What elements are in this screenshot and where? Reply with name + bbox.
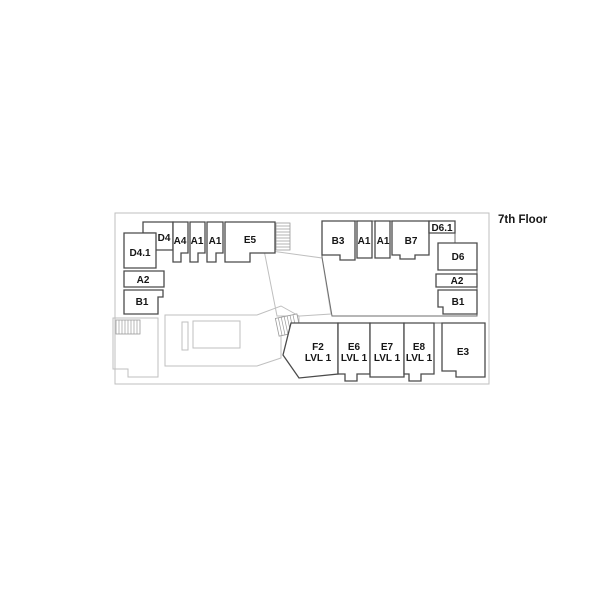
- room-label-a1-left-2: A1: [209, 236, 222, 247]
- room-sublabel-e8: LVL 1: [406, 353, 433, 364]
- room-a1-left-1: A1: [190, 222, 205, 262]
- room-label-e5: E5: [244, 235, 257, 246]
- room-label-e3: E3: [457, 347, 470, 358]
- room-d6-1: D6.1: [429, 221, 455, 234]
- room-b1-left: B1: [124, 290, 163, 314]
- room-e3: E3: [442, 323, 485, 377]
- room-label-f2: F2: [312, 342, 324, 353]
- room-e8: E8 LVL 1: [404, 323, 434, 381]
- room-label-b7: B7: [405, 236, 418, 247]
- room-label-e7: E7: [381, 342, 394, 353]
- room-e7: E7 LVL 1: [370, 323, 404, 377]
- room-label-d4-1: D4.1: [129, 248, 151, 259]
- room-sublabel-e7: LVL 1: [374, 353, 401, 364]
- room-f2: F2 LVL 1: [283, 323, 338, 378]
- stairs-top-icon: [276, 223, 290, 250]
- floor-title: 7th Floor: [498, 214, 548, 226]
- room-label-d6-1: D6.1: [431, 223, 453, 234]
- room-label-d6: D6: [452, 252, 465, 263]
- room-label-b1-left: B1: [136, 297, 149, 308]
- room-label-d4: D4: [158, 233, 171, 244]
- left-wing: D4 A4 A1 A1 E5 D4.1 A2 B1: [124, 222, 275, 314]
- room-b3: B3: [322, 221, 355, 260]
- room-a1-left-2: A1: [207, 222, 223, 262]
- room-b1-right: B1: [438, 290, 477, 314]
- shaft-small: [182, 322, 188, 350]
- room-a1-right-1: A1: [357, 221, 372, 258]
- room-label-b3: B3: [332, 236, 345, 247]
- room-a2-right: A2: [436, 274, 477, 287]
- room-sublabel-f2: LVL 1: [305, 353, 332, 364]
- room-a2-left: A2: [124, 271, 164, 287]
- shaft-large: [193, 321, 240, 348]
- room-label-a1-left-1: A1: [191, 236, 204, 247]
- room-label-a1-right-1: A1: [358, 236, 371, 247]
- room-a1-right-2: A1: [375, 221, 390, 258]
- room-label-a2-right: A2: [451, 276, 464, 287]
- room-label-a1-right-2: A1: [377, 236, 390, 247]
- stairs-bottom-left-icon: [116, 320, 140, 334]
- room-label-a2-left: A2: [137, 275, 150, 286]
- room-sublabel-e6: LVL 1: [341, 353, 368, 364]
- room-e6: E6 LVL 1: [338, 323, 370, 381]
- right-wing: B3 A1 A1 B7 D6.1 D6 A2 B1: [322, 221, 477, 314]
- room-label-e8: E8: [413, 342, 426, 353]
- floor-plan-svg: D4 A4 A1 A1 E5 D4.1 A2 B1: [0, 0, 600, 600]
- room-d6: D6: [438, 243, 477, 270]
- room-label-e6: E6: [348, 342, 361, 353]
- floor-plan-page: D4 A4 A1 A1 E5 D4.1 A2 B1: [0, 0, 600, 600]
- bottom-row: F2 LVL 1 E6 LVL 1 E7 LVL 1 E8 LVL 1 E3: [283, 323, 485, 381]
- room-b7: B7: [392, 221, 429, 259]
- room-a4: A4: [173, 222, 188, 262]
- room-d4-1: D4.1: [124, 233, 156, 268]
- room-e5: E5: [225, 222, 275, 262]
- room-label-a4: A4: [174, 236, 187, 247]
- corridor-connector: [264, 250, 331, 316]
- room-label-b1-right: B1: [452, 297, 465, 308]
